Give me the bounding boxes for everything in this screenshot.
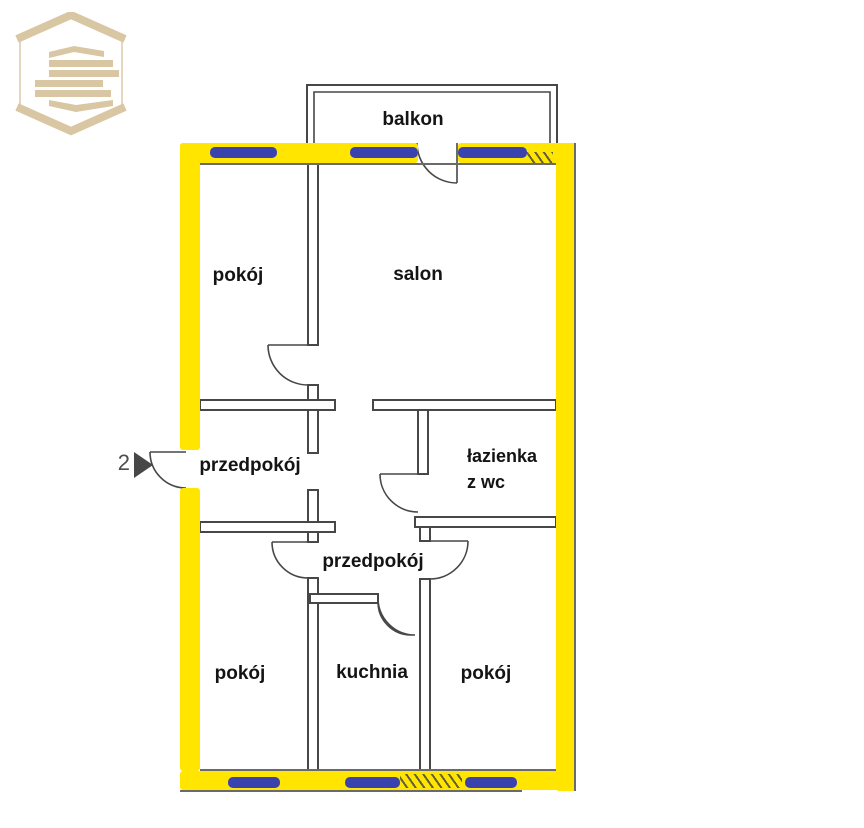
scan-line-bottom-wall-inner — [200, 769, 556, 771]
room-label-room-bottom-left: pokój — [190, 663, 290, 685]
interior-wall-stub-bathroom — [420, 527, 430, 541]
room-label-bathroom: łazienka z wc — [467, 443, 537, 495]
window-bottom-2 — [345, 777, 400, 788]
window-top-1 — [210, 147, 277, 158]
entrance-number-label: 2 — [108, 450, 130, 476]
interior-wall-bathroom-room4 — [415, 517, 556, 527]
door-arc-kitchen — [378, 598, 415, 635]
room-label-room-bottom-right: pokój — [436, 663, 536, 685]
interior-wall-hall-kitchen — [310, 594, 378, 603]
room-label-bathroom-line1: łazienka — [467, 443, 537, 469]
scan-line-bottom-wall-outer — [180, 790, 522, 792]
window-bottom-1 — [228, 777, 280, 788]
interior-wall-hall-room3 — [200, 522, 335, 532]
exterior-wall-right — [556, 143, 576, 791]
hatch-top-right — [527, 152, 553, 163]
floor-plan-page: balkon pokój salon przedpokój łazienka z… — [0, 0, 864, 828]
scan-line-right-wall — [574, 143, 576, 791]
interior-wall-room1-salon — [308, 163, 318, 345]
interior-wall-hall-mid — [308, 490, 318, 542]
door-arc-room-top-left — [268, 345, 308, 385]
room-label-room-top-left: pokój — [188, 265, 288, 287]
entrance-arrow-icon — [134, 452, 153, 478]
room-label-kitchen: kuchnia — [322, 662, 422, 684]
window-bottom-3 — [465, 777, 517, 788]
scan-line-top-wall — [200, 163, 556, 165]
window-top-2 — [350, 147, 418, 158]
room-label-living-room: salon — [368, 264, 468, 286]
room-label-bathroom-line2: z wc — [467, 469, 537, 495]
interior-wall-room3-kitchen — [308, 578, 318, 771]
hatch-bottom-wall — [400, 774, 462, 788]
window-top-3 — [458, 147, 527, 158]
interior-wall-salon-bathroom — [373, 400, 556, 410]
door-arc-bathroom — [380, 474, 418, 512]
exterior-wall-left-upper — [180, 143, 200, 450]
room-label-hallway-upper: przedpokój — [175, 455, 325, 477]
room-label-balcony: balkon — [363, 109, 463, 131]
interior-wall-hall-upper-right — [308, 385, 318, 453]
interior-wall-room1-hall — [200, 400, 335, 410]
exterior-wall-left-lower — [180, 488, 200, 771]
interior-wall-bathroom-left — [418, 408, 428, 474]
room-label-hallway-lower: przedpokój — [298, 551, 448, 573]
